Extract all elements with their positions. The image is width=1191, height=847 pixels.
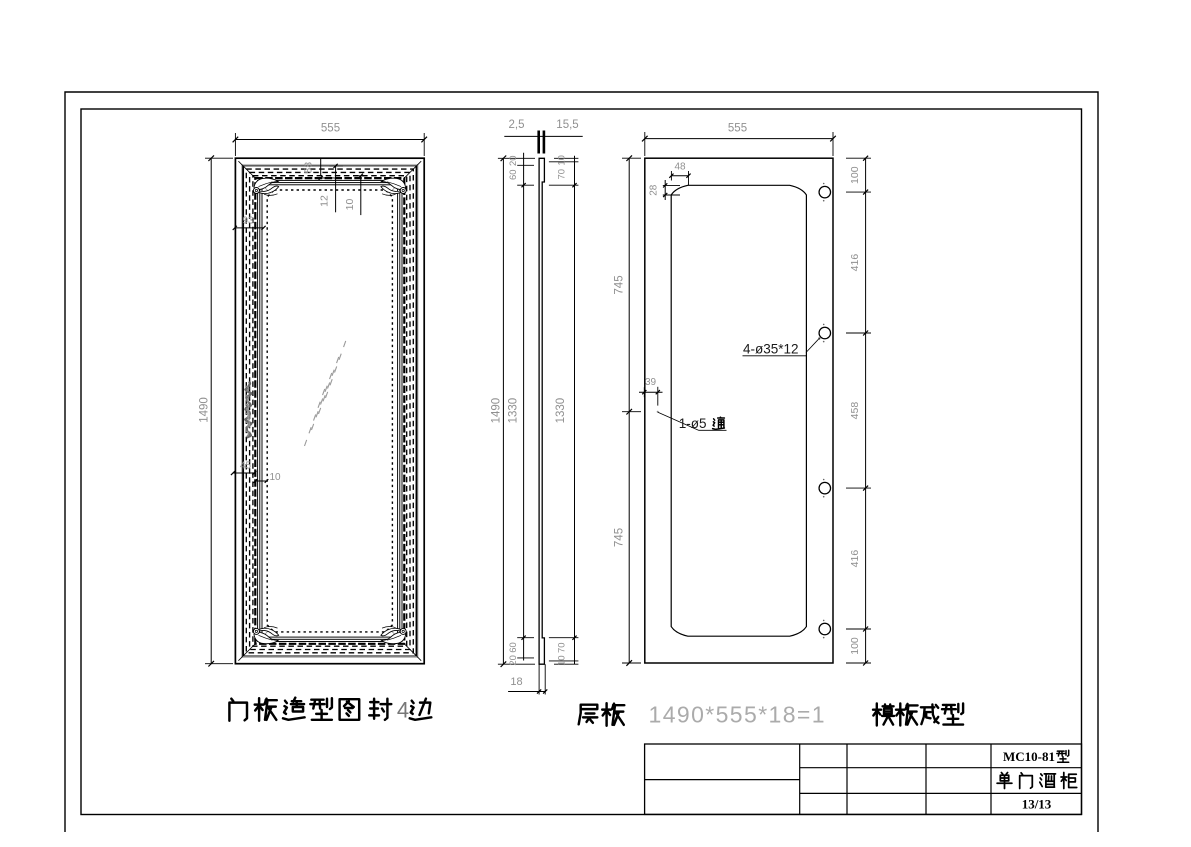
svg-text:100: 100	[849, 166, 861, 184]
svg-text:15,5: 15,5	[556, 119, 578, 131]
svg-text:60: 60	[508, 169, 519, 180]
svg-text:28: 28	[649, 184, 660, 196]
svg-text:1-ø5: 1-ø5	[679, 416, 707, 431]
svg-text:13/13: 13/13	[1022, 797, 1052, 812]
svg-text:555: 555	[321, 123, 340, 135]
svg-text:1490: 1490	[199, 397, 211, 423]
svg-text:93: 93	[242, 216, 254, 227]
svg-text:1490: 1490	[491, 398, 503, 424]
svg-text:4-ø35*12: 4-ø35*12	[743, 341, 799, 356]
svg-text:48: 48	[674, 162, 686, 173]
svg-text:MC10-81: MC10-81	[1003, 749, 1055, 764]
svg-text:416: 416	[849, 550, 861, 568]
svg-text:10: 10	[557, 155, 568, 166]
svg-text:70: 70	[557, 169, 568, 180]
svg-text:20: 20	[508, 655, 519, 666]
svg-text:1330: 1330	[507, 398, 519, 424]
svg-text:1490*555*18=1: 1490*555*18=1	[649, 702, 826, 728]
svg-text:745: 745	[614, 528, 626, 547]
svg-text:60: 60	[508, 642, 519, 653]
svg-text:100: 100	[849, 637, 861, 655]
svg-text:45: 45	[240, 461, 252, 472]
svg-text:70: 70	[557, 642, 568, 653]
svg-text:555: 555	[728, 123, 747, 135]
svg-text:58: 58	[303, 162, 315, 174]
svg-text:10: 10	[557, 655, 568, 666]
svg-text:458: 458	[849, 402, 861, 420]
svg-text:416: 416	[849, 254, 861, 272]
svg-text:12: 12	[319, 195, 331, 207]
svg-text:1330: 1330	[555, 398, 567, 424]
svg-text:745: 745	[614, 275, 626, 294]
svg-text:10: 10	[344, 199, 356, 211]
svg-text:4: 4	[397, 698, 409, 723]
svg-text:2,5: 2,5	[509, 119, 525, 131]
svg-text:18: 18	[510, 676, 522, 688]
svg-text:20: 20	[508, 155, 519, 166]
svg-text:10: 10	[270, 472, 282, 483]
svg-text:39: 39	[645, 377, 657, 388]
